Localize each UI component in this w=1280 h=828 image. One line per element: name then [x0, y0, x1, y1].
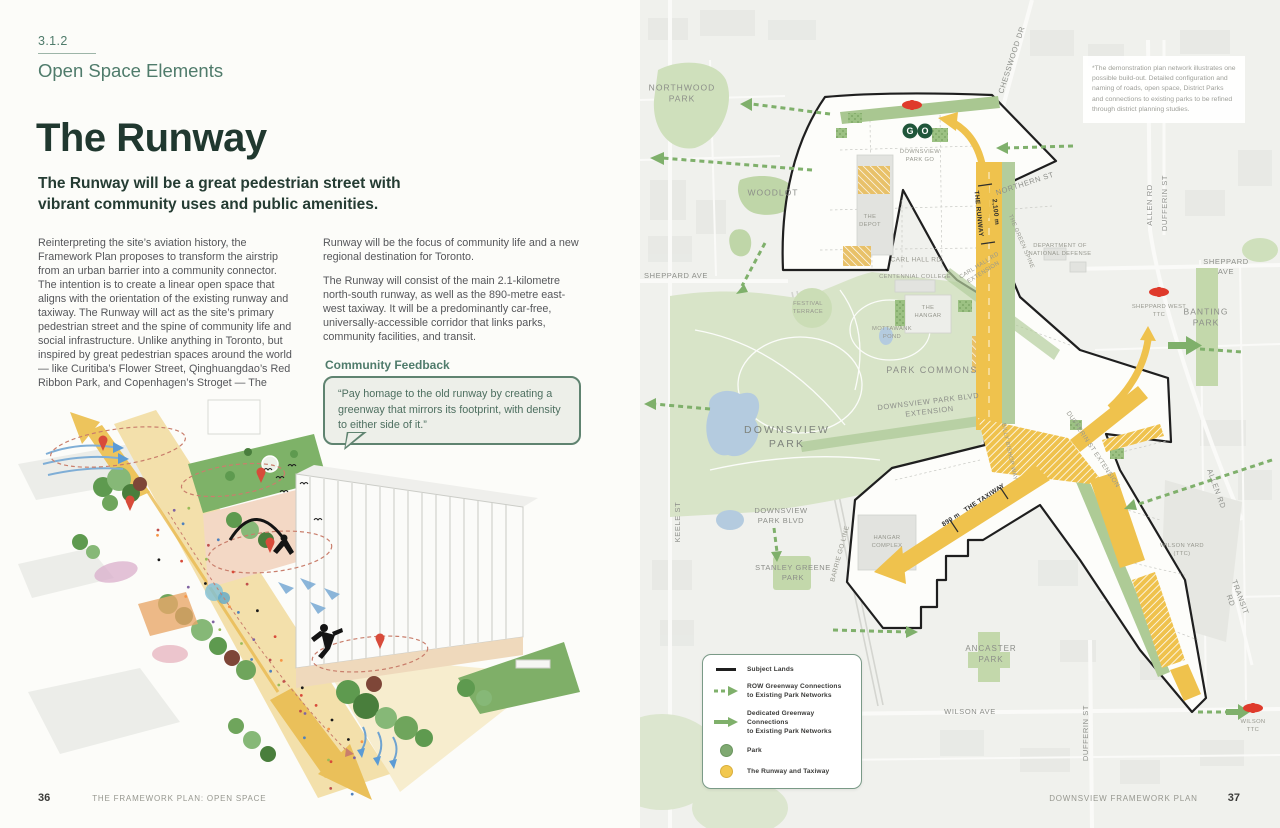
left-page: 3.1.2 Open Space Elements The Runway The…	[0, 0, 640, 828]
page-subtitle: The Runway will be a great pedestrian st…	[38, 174, 438, 216]
page-title: The Runway	[36, 116, 267, 161]
runway-illustration	[18, 392, 603, 804]
page-number: 37	[1228, 792, 1240, 804]
subject-lands-line-symbol	[714, 668, 738, 671]
dashed-green-arrow-symbol	[714, 686, 738, 696]
legend-label: The Runway and Taxiway	[747, 767, 829, 776]
demonstration-plan-note: *The demonstration plan network illustra…	[1083, 56, 1245, 123]
body-column-2: Runway will be the focus of community li…	[323, 236, 581, 344]
svg-text:O: O	[921, 126, 928, 136]
section-title: Open Space Elements	[38, 60, 223, 82]
body-paragraph: The Runway will consist of the main 2.1-…	[323, 274, 581, 344]
legend-label: ROW Greenway Connections to Existing Par…	[747, 682, 841, 700]
runway-circle-symbol	[714, 765, 738, 778]
section-number: 3.1.2	[38, 34, 68, 48]
body-paragraph: Runway will be the focus of community li…	[323, 236, 581, 264]
footer-text: THE FRAMEWORK PLAN: OPEN SPACE	[92, 794, 266, 803]
svg-text:G: G	[906, 126, 913, 136]
legend-label: Park	[747, 746, 762, 755]
legend-item-dedicated-greenway: Dedicated Greenway Connections to Existi…	[714, 709, 850, 737]
legend-label: Subject Lands	[747, 665, 794, 674]
body-paragraph: Reinterpreting the site’s aviation histo…	[38, 236, 292, 390]
body-column-1: Reinterpreting the site’s aviation histo…	[38, 236, 292, 390]
map-legend: Subject Lands ROW Greenway Connections t…	[702, 654, 862, 789]
legend-item-park: Park	[714, 744, 850, 757]
footer-text: DOWNSVIEW FRAMEWORK PLAN	[1049, 794, 1198, 803]
document-spread: { "left_page": { "section_number": "3.1.…	[0, 0, 1280, 828]
right-page: G O NORTHWOOD PARK WOODLOT SHEPPARD AVE …	[640, 0, 1280, 828]
community-feedback-heading: Community Feedback	[325, 358, 450, 372]
legend-item-row-greenway: ROW Greenway Connections to Existing Par…	[714, 682, 850, 700]
legend-item-runway-taxiway: The Runway and Taxiway	[714, 765, 850, 778]
legend-label: Dedicated Greenway Connections to Existi…	[747, 709, 850, 737]
legend-item-subject-lands: Subject Lands	[714, 665, 850, 674]
solid-green-arrow-symbol	[714, 717, 738, 727]
page-number: 36	[38, 792, 50, 804]
right-footer: DOWNSVIEW FRAMEWORK PLAN 37	[1049, 792, 1240, 804]
left-footer: 36 THE FRAMEWORK PLAN: OPEN SPACE	[38, 792, 266, 804]
section-rule	[38, 53, 96, 54]
park-circle-symbol	[714, 744, 738, 757]
